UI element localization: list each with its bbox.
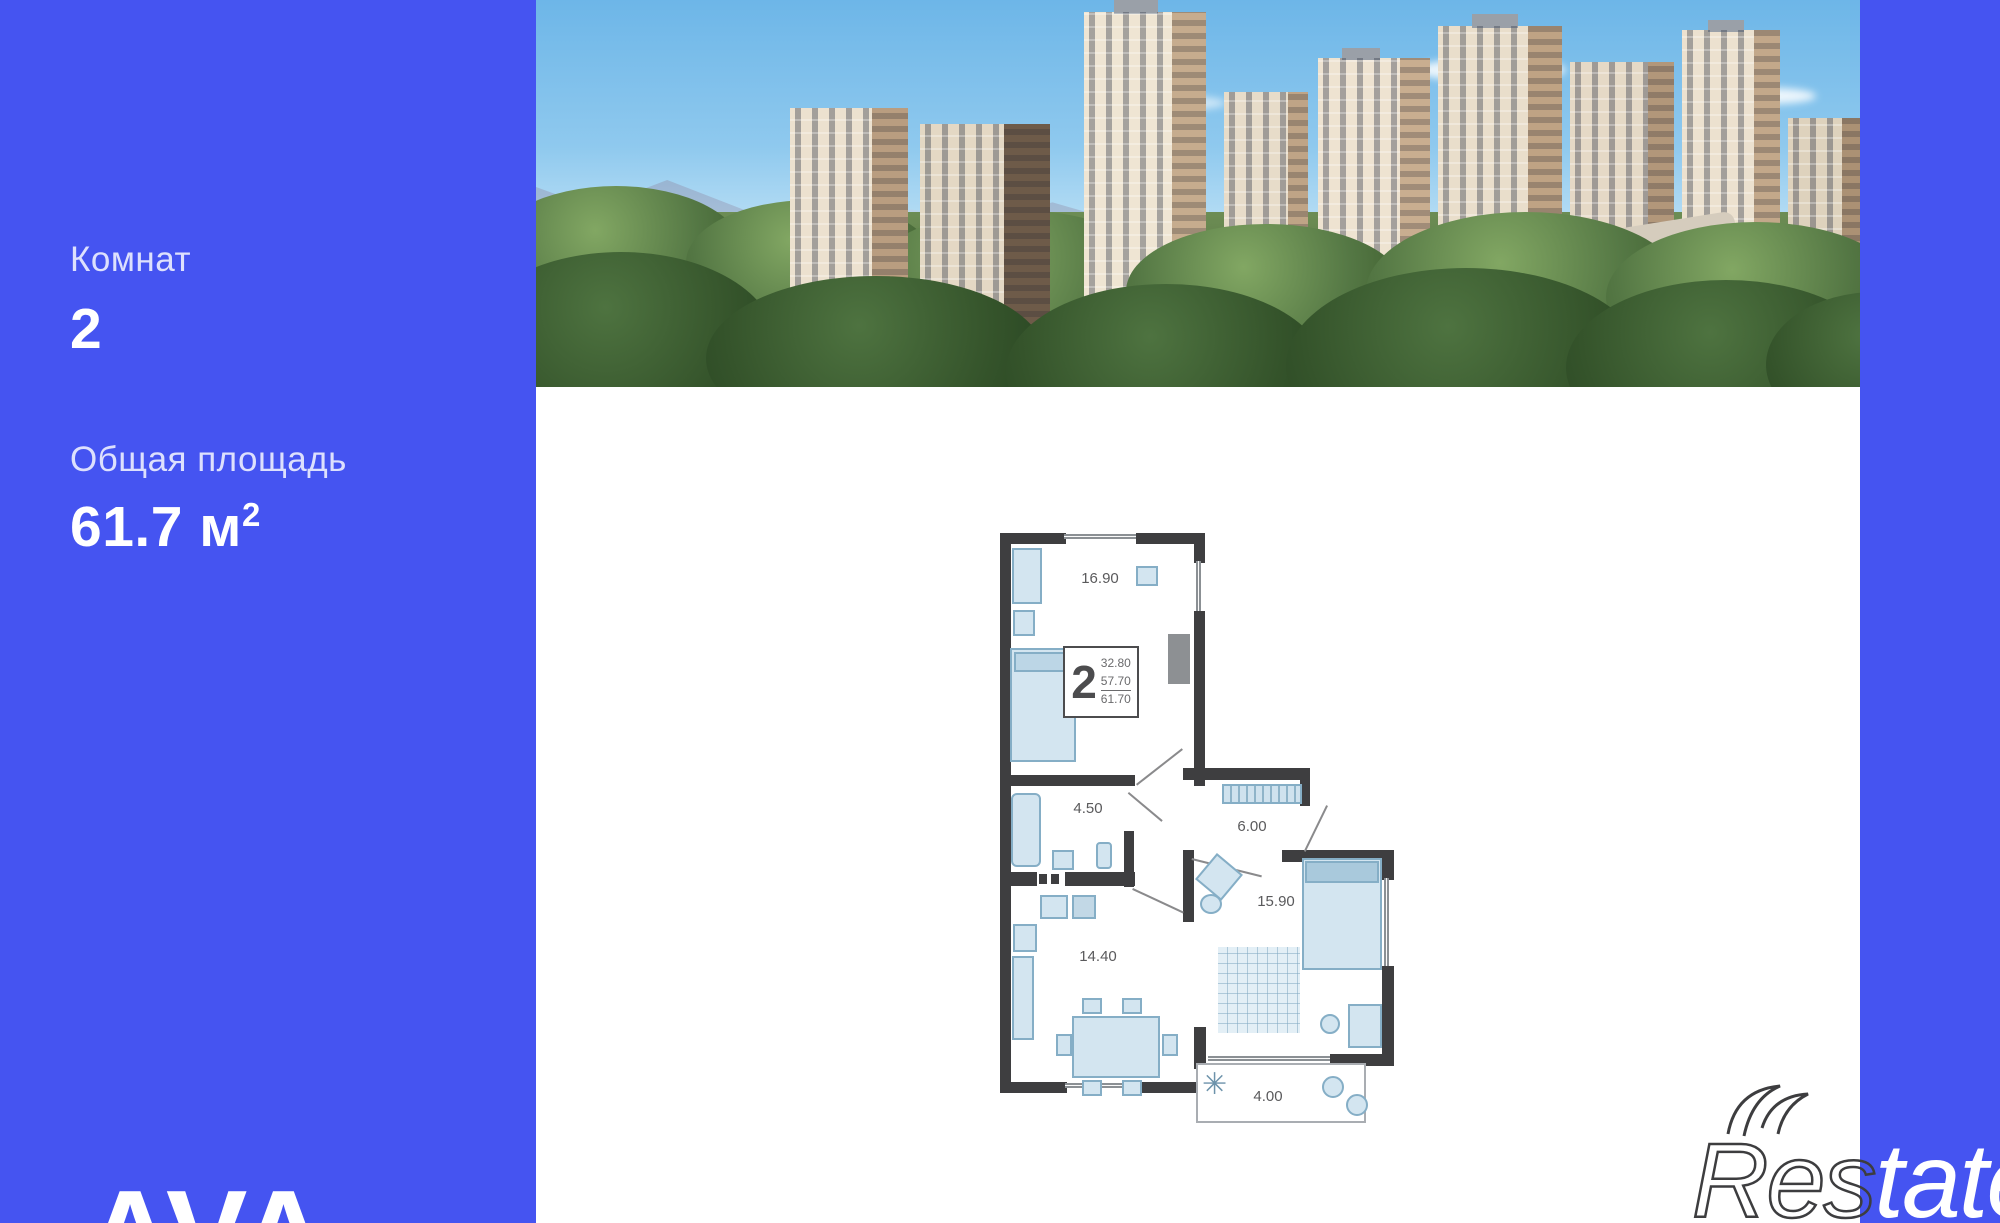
- rooms-label: Комнат: [70, 240, 191, 280]
- cabinet: [1012, 548, 1042, 604]
- wall: [1382, 966, 1394, 1066]
- chair: [1122, 998, 1142, 1014]
- kitchen-sink: [1040, 895, 1068, 919]
- balcony-chair: [1346, 1094, 1368, 1116]
- window: [1384, 878, 1389, 968]
- wall: [1008, 872, 1037, 886]
- ava-logo: AVA: [86, 1172, 328, 1223]
- wall: [1382, 850, 1394, 880]
- wall: [1131, 1082, 1205, 1093]
- balcony-chair: [1322, 1076, 1344, 1098]
- side-table: [1200, 894, 1222, 914]
- wall: [1194, 533, 1205, 563]
- wall: [1065, 872, 1135, 886]
- wall: [1000, 775, 1135, 786]
- window: [1196, 561, 1201, 613]
- plant-icon: ✳: [1202, 1070, 1227, 1100]
- area-label-bathroom: 4.50: [1058, 800, 1118, 817]
- stove: [1072, 895, 1096, 919]
- area-label-bedroom-top: 16.90: [1060, 570, 1140, 587]
- fridge: [1013, 924, 1037, 952]
- watermark-outline-text: Res: [1692, 1122, 1875, 1223]
- washing-machine: [1052, 850, 1074, 870]
- wardrobe: [1168, 634, 1190, 684]
- chair: [1056, 1034, 1072, 1056]
- total-area-label: Общая площадь: [70, 440, 347, 480]
- rug: [1218, 947, 1300, 1033]
- hall-wardrobe: [1222, 784, 1302, 804]
- chair: [1162, 1034, 1178, 1056]
- chair: [1082, 1080, 1102, 1096]
- desk: [1348, 1004, 1382, 1048]
- rooms-value: 2: [70, 296, 102, 362]
- total-area-value: 61.7 м2: [70, 494, 261, 560]
- door-entry: [1304, 805, 1328, 852]
- area-label-kitchen-living: 14.40: [1066, 948, 1130, 965]
- area-label-balcony: 4.00: [1238, 1088, 1298, 1105]
- badge-total-area: 61.70: [1101, 690, 1131, 708]
- chair: [1122, 1080, 1142, 1096]
- restate-watermark: Restate: [1692, 1128, 2000, 1223]
- wall: [1051, 874, 1059, 884]
- area-unit: м: [199, 495, 242, 559]
- door-living: [1132, 888, 1184, 913]
- desk-chair: [1320, 1014, 1340, 1034]
- toilet: [1096, 842, 1112, 869]
- listing-card: Комнат 2 Общая площадь 61.7 м2 AVA: [0, 0, 2000, 1223]
- area-number: 61.7: [70, 495, 183, 559]
- kitchen-cabinet: [1012, 956, 1034, 1040]
- area-label-bedroom-right: 15.90: [1244, 893, 1308, 910]
- area-unit-sup: 2: [242, 496, 261, 533]
- dining-table: [1072, 1016, 1160, 1078]
- badge-living-area: 32.80: [1101, 655, 1131, 672]
- badge-area-no-balcony: 57.70: [1101, 673, 1131, 690]
- wall: [1000, 786, 1011, 1093]
- window: [1064, 534, 1138, 539]
- wall: [1000, 1082, 1067, 1093]
- wall: [1183, 850, 1194, 922]
- cabinet-small: [1013, 610, 1035, 636]
- balcony-door-sill: [1208, 1056, 1330, 1061]
- plan-type-badge: 2 32.80 57.70 61.70: [1063, 646, 1139, 718]
- bed-pillow: [1305, 861, 1379, 883]
- floor-plan: 2 32.80 57.70 61.70: [536, 0, 1860, 1223]
- area-label-hallway: 6.00: [1222, 818, 1282, 835]
- wall: [1039, 874, 1047, 884]
- content-panel: 2 32.80 57.70 61.70: [536, 0, 1860, 1223]
- wall: [1194, 611, 1205, 786]
- bathtub: [1011, 793, 1041, 867]
- wall: [1183, 768, 1310, 780]
- chair: [1082, 998, 1102, 1014]
- badge-rooms: 2: [1071, 659, 1097, 705]
- door-bathroom: [1128, 792, 1163, 822]
- watermark-solid-text: tate: [1875, 1122, 2000, 1223]
- door-top-room: [1136, 748, 1183, 785]
